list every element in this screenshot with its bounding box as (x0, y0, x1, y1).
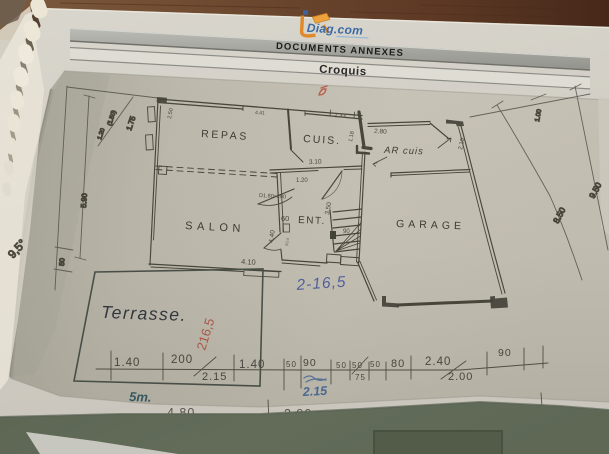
svg-text:5.90: 5.90 (79, 193, 89, 208)
svg-text:80: 80 (391, 358, 405, 370)
svg-text:90: 90 (303, 357, 317, 369)
svg-text:2.15: 2.15 (202, 371, 227, 383)
svg-text:2.80: 2.80 (374, 128, 387, 136)
svg-text:4.10: 4.10 (241, 257, 256, 267)
svg-text:90: 90 (343, 229, 350, 235)
svg-text:60: 60 (281, 214, 289, 223)
svg-text:90: 90 (498, 347, 512, 359)
svg-text:2-16,5: 2-16,5 (295, 274, 347, 295)
svg-text:3.10: 3.10 (309, 159, 322, 166)
svg-text:5m.: 5m. (129, 389, 152, 405)
svg-text:50: 50 (59, 258, 67, 266)
svg-text:50: 50 (286, 360, 297, 369)
svg-text:1.40: 1.40 (114, 357, 140, 369)
svg-text:2.33: 2.33 (334, 113, 347, 120)
svg-text:200: 200 (171, 354, 193, 366)
svg-text:2.00: 2.00 (448, 371, 473, 383)
svg-text:ENT.: ENT. (298, 215, 326, 227)
svg-text:2.15: 2.15 (301, 384, 328, 399)
svg-text:AR cuis: AR cuis (383, 145, 424, 157)
svg-text:50: 50 (352, 361, 363, 370)
svg-text:Terrasse.: Terrasse. (101, 302, 187, 325)
svg-text:GARAGE: GARAGE (396, 218, 465, 232)
svg-text:50: 50 (336, 361, 347, 370)
svg-text:50: 50 (370, 360, 381, 369)
svg-text:Diag.com: Diag.com (306, 21, 363, 38)
svg-text:4.41: 4.41 (255, 110, 265, 117)
svg-text:CUIS.: CUIS. (303, 133, 342, 147)
svg-text:2.40: 2.40 (425, 356, 451, 368)
svg-text:1.20: 1.20 (296, 178, 308, 184)
svg-text:1.40: 1.40 (239, 359, 265, 371)
svg-text:75: 75 (355, 373, 366, 382)
